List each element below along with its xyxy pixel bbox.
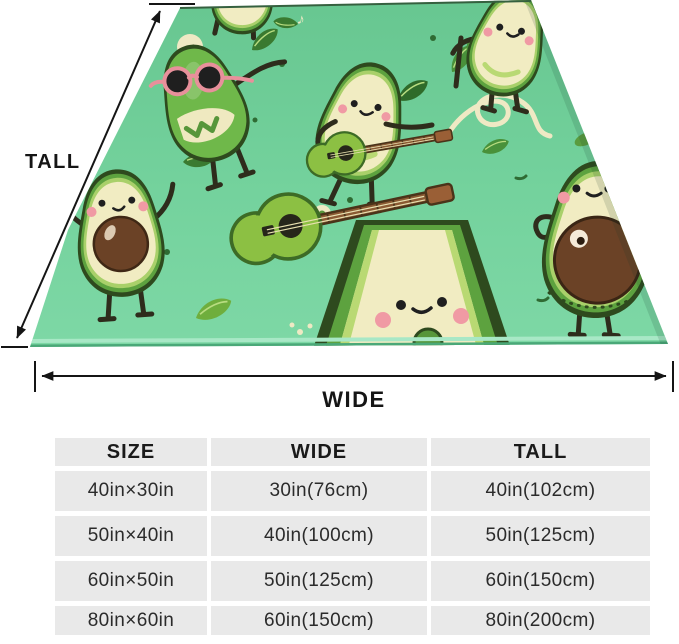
row1-tall-cell: 40in(102cm)	[431, 471, 650, 511]
tall-dimension-label: TALL	[25, 151, 81, 174]
row3-wide-cell: 50in(125cm)	[211, 561, 427, 601]
row3-tall-cell: 60in(150cm)	[431, 561, 650, 601]
wide-dimension-label: WIDE	[322, 387, 385, 413]
row1-wide-cell: 30in(76cm)	[211, 471, 427, 511]
row2-tall-cell: 50in(125cm)	[431, 516, 650, 556]
row3-size-cell: 60in×50in	[55, 561, 207, 601]
row2-wide-cell: 40in(100cm)	[211, 516, 427, 556]
row1-size-cell: 40in×30in	[55, 471, 207, 511]
dimension-diagram: ♫ ♪	[0, 0, 679, 435]
blanket-artwork: ♫ ♪	[0, 0, 679, 357]
row4-wide-cell: 60in(150cm)	[211, 606, 427, 635]
row4-tall-cell: 80in(200cm)	[431, 606, 650, 635]
blanket-photo: ♫ ♪	[0, 0, 679, 435]
column-header-size: SIZE	[55, 438, 207, 466]
size-chart-table: SIZE WIDE TALL 40in×30in 30in(76cm) 40in…	[55, 438, 650, 635]
column-header-tall: TALL	[431, 438, 650, 466]
row4-size-cell: 80in×60in	[55, 606, 207, 635]
column-header-wide: WIDE	[211, 438, 427, 466]
product-size-infographic: ♫ ♪	[0, 0, 679, 644]
row2-size-cell: 50in×40in	[55, 516, 207, 556]
